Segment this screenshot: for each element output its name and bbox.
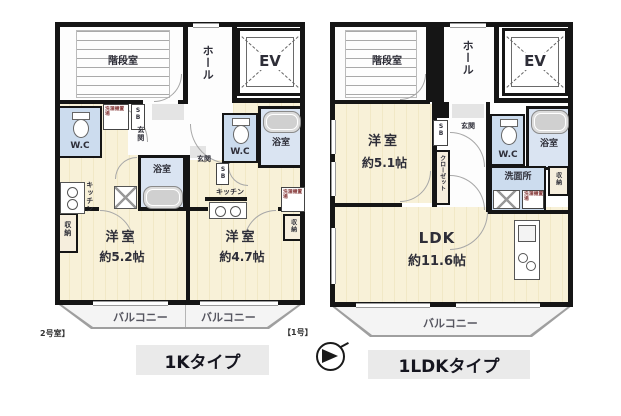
left-plan-caption-text: 1Kタイプ [164, 348, 240, 373]
stairwell-label: 階段室 [88, 56, 158, 67]
wall [568, 22, 573, 307]
wall [186, 155, 190, 305]
wall [330, 203, 402, 207]
shoebox-unit1-label: SB [219, 166, 226, 180]
entrance-unit2-label: 玄関 [136, 126, 144, 142]
window [93, 301, 168, 306]
wall [330, 100, 430, 104]
toilet-icon [501, 126, 517, 145]
elevator-label: EV [520, 53, 550, 70]
compass-needle [322, 349, 338, 363]
window [331, 120, 336, 154]
shoebox: SB [433, 120, 448, 146]
storage: 収納 [548, 166, 569, 196]
wall [494, 22, 499, 100]
balcony-right-plan: バルコニー [330, 305, 573, 339]
wall [55, 22, 305, 27]
washbasin-icon [493, 190, 520, 209]
toilet-icon [73, 119, 89, 138]
wall [232, 98, 305, 103]
laundry: 洗濯機置場 [522, 190, 544, 209]
wall [494, 98, 573, 103]
ldk-size: 約11.6帖 [392, 255, 482, 269]
window [450, 23, 486, 28]
bathtub-icon [263, 111, 301, 133]
bath-unit1-label: 浴室 [263, 139, 299, 149]
window [456, 303, 540, 308]
bedroom-size: 約5.1帖 [342, 157, 427, 170]
wall [183, 22, 188, 104]
entrance-unit1-label: 玄関 [190, 156, 218, 164]
balcony-floor [55, 302, 305, 330]
left-plan-caption: 1Kタイプ [136, 345, 269, 375]
window [193, 23, 219, 28]
room2-size: 約5.2帖 [78, 251, 166, 264]
bathroom-label: 浴室 [531, 140, 567, 150]
stove-icon [60, 182, 85, 214]
hall-label: ホール [201, 45, 213, 81]
wall [486, 102, 490, 212]
window [200, 301, 278, 306]
unit2-entry-step [152, 104, 184, 120]
entry-step [452, 104, 484, 118]
north-arrow-icon [314, 338, 346, 370]
stove-icon [209, 202, 247, 219]
kitchen-counter [514, 220, 540, 280]
laundry-unit2: 洗濯機置場 [103, 104, 129, 130]
wall [488, 210, 573, 214]
unit1-tag: 【1号】 [283, 327, 313, 338]
balcony-label: バルコニー [423, 315, 478, 331]
room1-size: 約4.7帖 [198, 251, 286, 264]
wc-label: W.C [494, 151, 522, 161]
wc-unit1-label: W.C [226, 148, 254, 158]
entrance-label: 玄関 [453, 123, 483, 131]
wc-unit2-label: W.C [62, 142, 98, 152]
wall [205, 197, 247, 201]
room2-name: 洋室 [84, 231, 159, 245]
hall-label: ホール [461, 40, 473, 76]
balcony-label: バルコニー [201, 309, 256, 325]
unit2-tag: 2号室】 [40, 328, 70, 339]
elevator-shaft: EV [237, 28, 303, 96]
window [331, 162, 336, 196]
shoebox-label: SB [437, 123, 444, 137]
bedroom-name: 洋室 [348, 135, 420, 149]
balcony-label: バルコニー [113, 309, 168, 325]
wall [433, 102, 449, 118]
bathtub-icon [531, 110, 569, 134]
window [331, 228, 336, 284]
kitchen-unit1-label: キッチン [208, 189, 252, 197]
bath-unit2-label: 浴室 [143, 166, 181, 176]
floorplan-canvas: EV W.C 洗濯機置場 SB 玄関 浴室 キッチン 収納 玄関 SB [0, 0, 621, 416]
wall [300, 22, 305, 305]
laundry-label: 洗濯機置場 [524, 192, 543, 202]
balcony-divider [185, 302, 186, 327]
compass-tail [340, 342, 349, 348]
kitchen-unit2-label: キッチン [85, 181, 93, 213]
right-plan-caption-text: 1LDKタイプ [399, 352, 500, 377]
shoebox-unit2-label: SB [134, 107, 141, 121]
toilet-icon [233, 125, 249, 144]
storage-label: 収納 [554, 172, 561, 186]
closet-label: クローゼット [438, 155, 445, 191]
sink-icon [518, 225, 536, 242]
elevator-shaft: EV [502, 28, 568, 96]
laundry-unit1-label: 洗濯機置場 [283, 190, 304, 200]
balcony-left-plan: バルコニー バルコニー [55, 302, 305, 330]
storage-unit1-label: 収納 [289, 219, 296, 233]
window [356, 303, 430, 308]
washroom-label: 洗面所 [494, 173, 542, 183]
bathtub-icon [143, 186, 183, 209]
storage-unit2-label: 収納 [63, 221, 71, 237]
wall [186, 207, 208, 211]
washbasin-icon [114, 186, 137, 209]
ldk-name: LDK [405, 230, 469, 247]
shoebox-unit1: SB [216, 163, 229, 185]
elevator-label: EV [255, 53, 285, 70]
laundry-unit2-label: 洗濯機置場 [105, 107, 127, 117]
wall [55, 22, 60, 305]
wall [426, 22, 444, 102]
laundry-unit1: 洗濯機置場 [281, 187, 305, 212]
stairwell-label: 階段室 [352, 56, 422, 67]
wall [55, 100, 143, 104]
right-plan-caption: 1LDKタイプ [368, 350, 530, 379]
wall [232, 22, 237, 102]
room1-name: 洋室 [204, 231, 279, 245]
